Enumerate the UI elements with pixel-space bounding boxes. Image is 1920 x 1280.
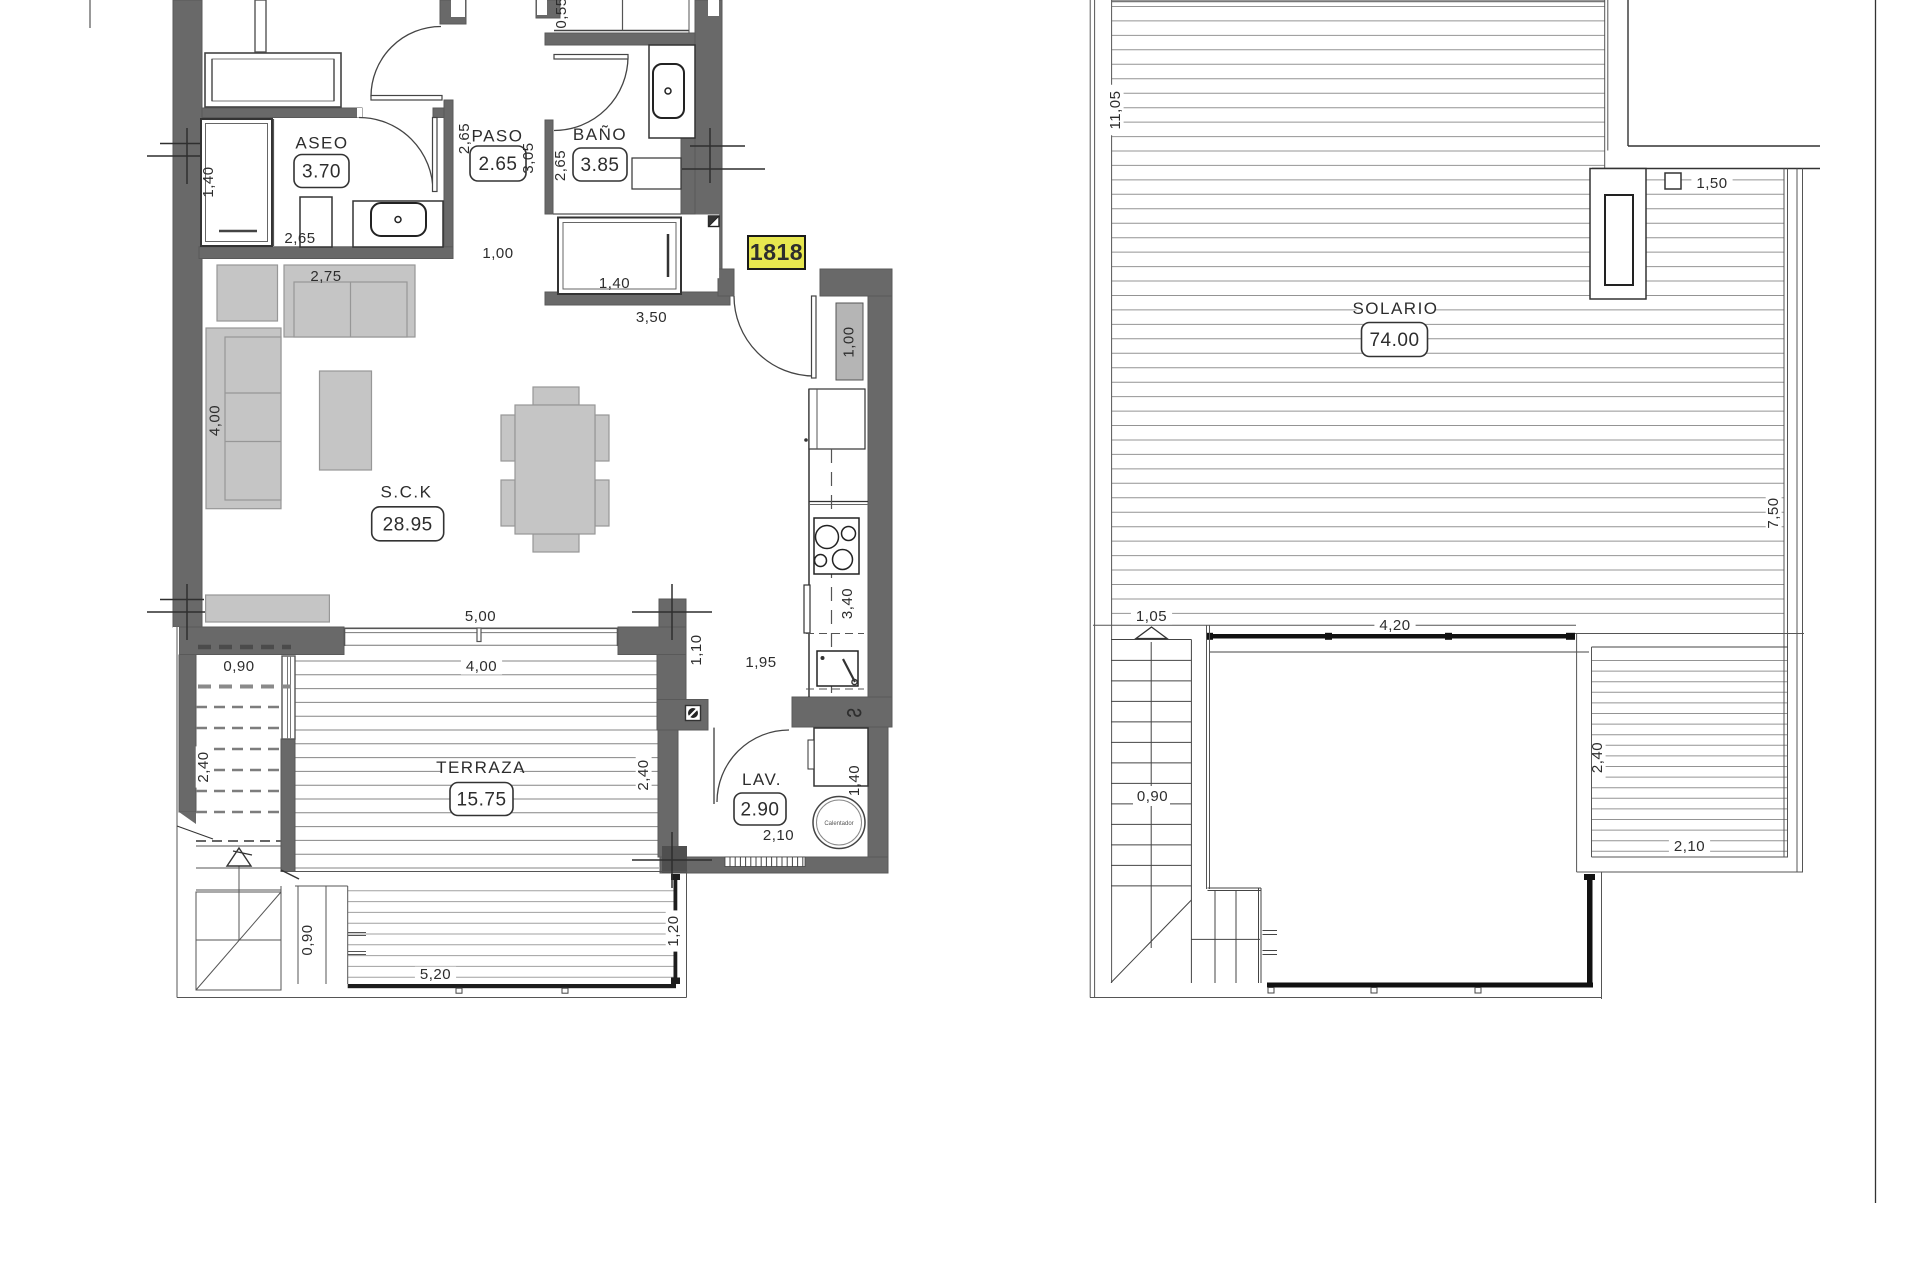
svg-text:2,10: 2,10 bbox=[763, 827, 794, 844]
svg-text:15.75: 15.75 bbox=[456, 789, 506, 810]
svg-text:2,65: 2,65 bbox=[552, 150, 569, 181]
svg-text:1,00: 1,00 bbox=[482, 245, 513, 262]
svg-text:0,90: 0,90 bbox=[223, 658, 254, 675]
svg-text:ASEO: ASEO bbox=[295, 134, 348, 153]
svg-text:2.65: 2.65 bbox=[479, 154, 518, 175]
svg-text:74.00: 74.00 bbox=[1369, 330, 1419, 351]
svg-text:5,20: 5,20 bbox=[420, 966, 451, 983]
svg-text:1,95: 1,95 bbox=[745, 654, 776, 671]
svg-text:4,20: 4,20 bbox=[1379, 617, 1410, 634]
svg-text:1,00: 1,00 bbox=[841, 326, 858, 357]
svg-text:7,50: 7,50 bbox=[1765, 497, 1782, 528]
svg-text:2,75: 2,75 bbox=[310, 268, 341, 285]
svg-text:1,40: 1,40 bbox=[200, 166, 217, 197]
svg-text:2,10: 2,10 bbox=[1674, 838, 1705, 855]
svg-text:2,40: 2,40 bbox=[195, 751, 212, 782]
svg-text:5,00: 5,00 bbox=[465, 608, 496, 625]
svg-text:11,05: 11,05 bbox=[1107, 91, 1124, 130]
svg-text:1,20: 1,20 bbox=[665, 915, 682, 946]
svg-text:1,05: 1,05 bbox=[1136, 608, 1167, 625]
svg-text:3,50: 3,50 bbox=[636, 309, 667, 326]
svg-text:1,40: 1,40 bbox=[599, 275, 630, 292]
svg-text:4,00: 4,00 bbox=[207, 405, 224, 436]
svg-text:3,05: 3,05 bbox=[520, 142, 537, 173]
svg-text:2,40: 2,40 bbox=[635, 759, 652, 790]
svg-text:28.95: 28.95 bbox=[383, 514, 433, 535]
svg-text:2,65: 2,65 bbox=[284, 230, 315, 247]
svg-text:TERRAZA: TERRAZA bbox=[436, 758, 526, 777]
svg-text:1,40: 1,40 bbox=[846, 765, 863, 796]
svg-text:0,90: 0,90 bbox=[299, 924, 316, 955]
svg-text:SOLARIO: SOLARIO bbox=[1352, 299, 1438, 318]
svg-text:3.85: 3.85 bbox=[581, 155, 620, 176]
svg-text:3,40: 3,40 bbox=[839, 588, 856, 619]
svg-text:S.C.K: S.C.K bbox=[381, 483, 433, 502]
svg-text:1,10: 1,10 bbox=[688, 634, 705, 665]
svg-text:3.70: 3.70 bbox=[302, 161, 341, 182]
svg-text:2.90: 2.90 bbox=[741, 799, 780, 820]
svg-text:LAV.: LAV. bbox=[742, 770, 782, 789]
svg-text:0,90: 0,90 bbox=[1137, 788, 1168, 805]
svg-text:2,65: 2,65 bbox=[456, 123, 473, 154]
svg-text:BAÑO: BAÑO bbox=[573, 125, 627, 144]
svg-text:0,55: 0,55 bbox=[553, 0, 570, 29]
svg-text:PASO: PASO bbox=[472, 127, 524, 146]
svg-text:4,00: 4,00 bbox=[466, 658, 497, 675]
svg-text:1818: 1818 bbox=[750, 239, 803, 265]
svg-text:Calentador: Calentador bbox=[824, 821, 853, 827]
svg-text:1,50: 1,50 bbox=[1696, 175, 1727, 192]
